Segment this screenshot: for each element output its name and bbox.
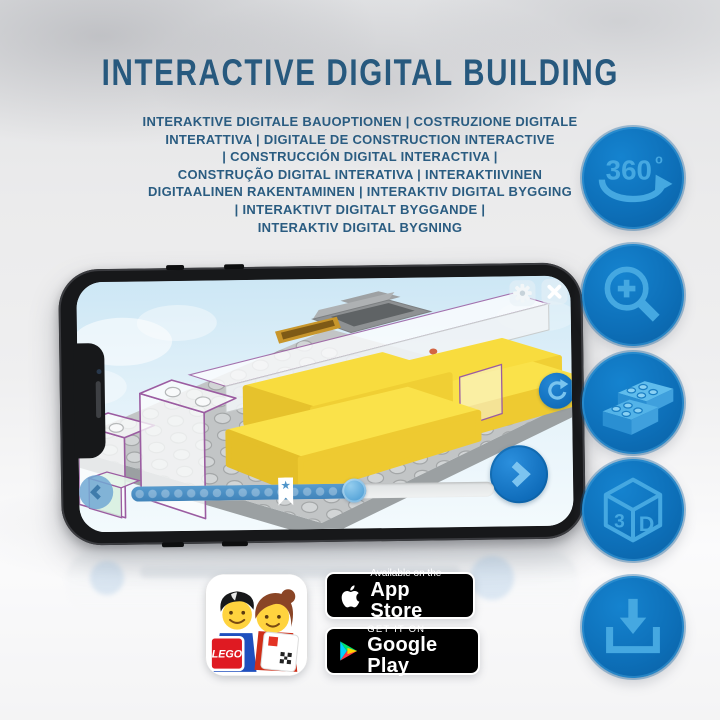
subtitle-line: | CONSTRUCCIÓN DIGITAL INTERACTIVA | <box>60 148 660 166</box>
front-camera <box>96 369 101 374</box>
subtitle-line: INTERAKTIV DIGITAL BYGNING <box>60 219 660 237</box>
lego-builder-app-icon[interactable]: LEGO <box>205 574 308 676</box>
reflection-shape <box>90 561 124 595</box>
power-button <box>162 542 184 547</box>
svg-text:o: o <box>655 153 663 167</box>
badge-store-name: Google Play <box>367 635 466 677</box>
badge-store-name: App Store <box>370 580 461 622</box>
close-icon <box>543 281 565 303</box>
feature-download <box>582 576 684 678</box>
subtitle-multilingual: INTERAKTIVE DIGITALE BAUOPTIONEN | COSTR… <box>60 113 660 236</box>
feature-360-rotation: 360 o <box>582 127 684 229</box>
gear-icon <box>511 282 533 304</box>
app-screen: ★ <box>76 276 573 533</box>
chevron-right-icon <box>499 454 540 495</box>
volume-button <box>224 264 244 269</box>
subtitle-line: CONSTRUÇÃO DIGITAL INTERATIVA | INTERAKT… <box>60 166 660 184</box>
svg-text:D: D <box>639 511 655 536</box>
rotate-button[interactable] <box>539 372 574 408</box>
download-icon <box>594 588 672 666</box>
cube-3d-icon: 3 D <box>593 470 673 550</box>
feature-zoom-in <box>582 244 684 346</box>
power-button <box>222 541 248 546</box>
chevron-left-icon <box>84 480 108 504</box>
feature-3d-view: 3 D <box>582 459 684 561</box>
lego-logo: LEGO <box>212 649 243 661</box>
svg-text:3: 3 <box>614 512 625 533</box>
subtitle-line: DIGITAALINEN RAKENTAMINEN | INTERAKTIV D… <box>60 183 660 201</box>
subtitle-line: INTERAKTIVE DIGITALE BAUOPTIONEN | COSTR… <box>60 113 660 131</box>
rotate-icon <box>544 378 570 404</box>
speaker-slit <box>96 381 102 418</box>
camera-notch <box>73 343 106 458</box>
app-store-badge[interactable]: Available on the App Store <box>325 572 475 619</box>
subtitle-line: | INTERAKTIVT DIGITALT BYGGANDE | <box>60 201 660 219</box>
svg-text:360: 360 <box>606 155 652 186</box>
feature-brick-options <box>582 352 684 454</box>
volume-button <box>166 265 184 270</box>
apple-icon <box>339 582 361 610</box>
brick-building-options-icon <box>591 361 675 445</box>
phone-mockup: ★ <box>58 262 586 545</box>
page-title: INTERACTIVE DIGITAL BUILDING <box>0 52 720 94</box>
reflection-shape <box>470 556 514 600</box>
subtitle-line: INTERATTIVA | DIGITALE DE CONSTRUCTION I… <box>60 131 660 149</box>
rotation-360-icon: 360 o <box>591 136 675 220</box>
zoom-in-icon <box>593 255 673 335</box>
close-button[interactable] <box>541 279 567 305</box>
lego-minifigures-art: LEGO <box>205 574 308 676</box>
google-play-badge[interactable]: GET IT ON Google Play <box>325 627 480 675</box>
phone-reflection <box>66 551 578 613</box>
settings-button[interactable] <box>509 280 535 306</box>
google-play-icon <box>339 638 358 664</box>
